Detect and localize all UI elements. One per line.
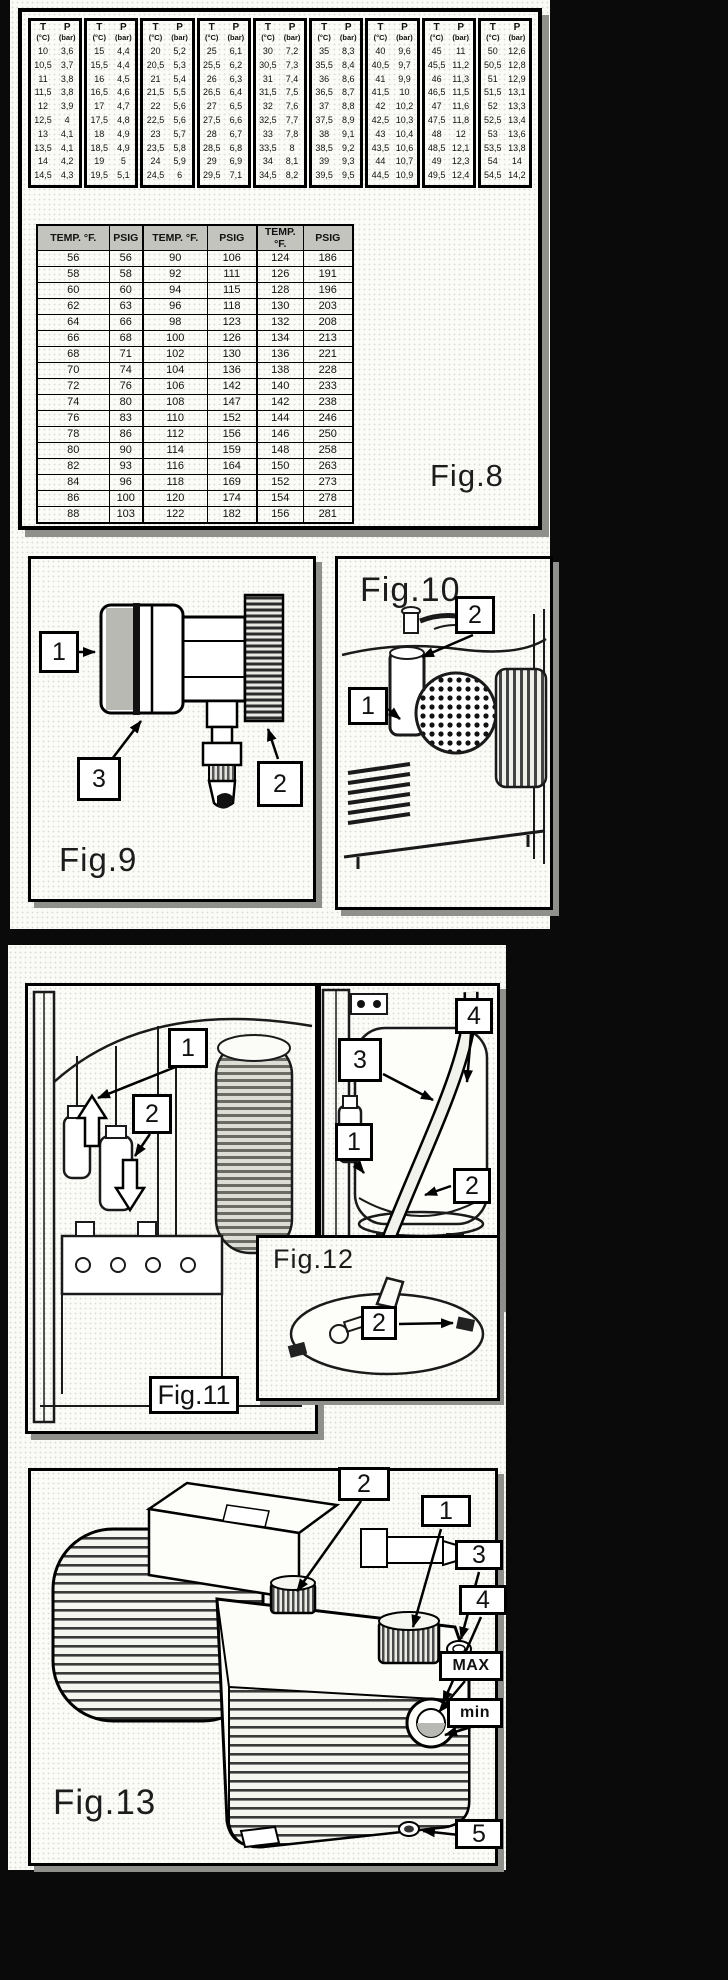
tp-cell-p: 7,5 [280, 86, 304, 100]
psig-cell: 86 [109, 427, 143, 443]
tp-cell-p: 5,6 [168, 100, 192, 114]
psig-header-cell: TEMP. °F. [143, 225, 207, 251]
fig10-callout-2: 2 [455, 596, 495, 634]
psig-cell: 142 [257, 395, 303, 411]
psig-cell: 103 [109, 507, 143, 524]
psig-cell: 74 [109, 363, 143, 379]
tp-cell-t: 41,5 [368, 86, 392, 100]
tp-cell-p: 6 [168, 169, 192, 183]
psig-cell: 66 [109, 315, 143, 331]
tp-cell-t: 10,5 [31, 59, 55, 73]
tp-cell-p: 13,3 [505, 100, 529, 114]
psig-row: 8293116164150263 [37, 459, 353, 475]
tp-cell-p: 8 [280, 142, 304, 156]
tp-cell-p: 3,8 [55, 73, 79, 87]
psig-cell: 120 [143, 491, 207, 507]
tp-pair: T(°C)P(bar)256,125,56,2266,326,56,4276,5… [197, 18, 251, 188]
tp-cell-p: 12 [449, 128, 473, 142]
psig-cell: 221 [303, 347, 353, 363]
tp-cell-p: 4 [55, 114, 79, 128]
tp-cell-p: 11,3 [449, 73, 473, 87]
tp-cell-p: 14 [505, 155, 529, 169]
psig-cell: 233 [303, 379, 353, 395]
psig-cell: 124 [257, 251, 303, 267]
tp-cell-p: 8,2 [280, 169, 304, 183]
fig9-label: Fig.9 [59, 841, 137, 879]
psig-cell: 60 [37, 283, 109, 299]
tp-cell-t: 50 [481, 45, 505, 59]
psig-cell: 278 [303, 491, 353, 507]
tp-cell-t: 45 [425, 45, 449, 59]
tp-pair-header: T(°C)P(bar) [312, 21, 360, 42]
psig-header-cell: TEMP. °F. [257, 225, 303, 251]
tp-cell-p: 10 [392, 86, 416, 100]
tp-cell-t: 25,5 [200, 59, 224, 73]
tp-cell-t: 29 [200, 155, 224, 169]
psig-cell: 110 [143, 411, 207, 427]
tp-cell-p: 4,6 [111, 86, 135, 100]
tp-cell-t: 18,5 [87, 142, 111, 156]
tp-cell-p: 4,3 [55, 169, 79, 183]
tp-cell-t: 17,5 [87, 114, 111, 128]
fig13-callout-3: 3 [455, 1540, 503, 1570]
tp-cell-t: 14 [31, 155, 55, 169]
psig-row: 88103122182156281 [37, 507, 353, 524]
tp-cell-t: 44,5 [368, 169, 392, 183]
psig-cell: 191 [303, 267, 353, 283]
tp-cell-t: 32 [256, 100, 280, 114]
fig12-inset: Fig.12 2 [256, 1235, 500, 1401]
psig-cell: 82 [37, 459, 109, 475]
tp-cell-t: 12,5 [31, 114, 55, 128]
psig-cell: 96 [109, 475, 143, 491]
fig10-panel: Fig.10 2 1 [335, 556, 553, 910]
fig12-callout-4: 4 [455, 998, 493, 1034]
tp-cell-p: 12,9 [505, 73, 529, 87]
tp-cell-p: 9,9 [392, 73, 416, 87]
tp-cell-t: 22,5 [143, 114, 167, 128]
tp-cell-p: 4,2 [55, 155, 79, 169]
fig12-inset-callout-2: 2 [361, 1306, 397, 1340]
tp-cell-p: 7,8 [280, 128, 304, 142]
psig-cell: 130 [207, 347, 257, 363]
psig-cell: 76 [37, 411, 109, 427]
tp-cell-p: 5,7 [168, 128, 192, 142]
psig-cell: 238 [303, 395, 353, 411]
tp-pair-body: 409,640,59,7419,941,5104210,242,510,3431… [368, 42, 416, 185]
tp-pair: T(°C)P(bar)154,415,54,4164,516,54,6174,7… [84, 18, 138, 188]
tp-cell-t: 46 [425, 73, 449, 87]
tp-cell-t: 36 [312, 73, 336, 87]
fig13-panel: 2 1 3 4 MAX min 5 Fig.13 [28, 1468, 498, 1866]
psig-cell: 72 [37, 379, 109, 395]
tp-cell-t: 19,5 [87, 169, 111, 183]
tp-cell-t: 21 [143, 73, 167, 87]
psig-cell: 93 [109, 459, 143, 475]
psig-row: 565690106124186 [37, 251, 353, 267]
tp-cell-p: 12,1 [449, 142, 473, 156]
fig13-label: Fig.13 [53, 1783, 156, 1823]
psig-cell: 130 [257, 299, 303, 315]
psig-cell: 156 [257, 507, 303, 524]
psig-cell: 258 [303, 443, 353, 459]
tp-cell-t: 12 [31, 100, 55, 114]
psig-cell: 154 [257, 491, 303, 507]
fig10-callout-1: 1 [348, 687, 388, 725]
tp-cell-t: 40 [368, 45, 392, 59]
psig-cell: 128 [257, 283, 303, 299]
fig8-tables-box: T(°C)P(bar)103,610,53,7113,811,53,8123,9… [18, 8, 542, 530]
tp-cell-t: 15,5 [87, 59, 111, 73]
tp-cell-p: 5,8 [168, 142, 192, 156]
psig-cell: 213 [303, 331, 353, 347]
tp-cell-t: 30 [256, 45, 280, 59]
tp-cell-p: 4,1 [55, 142, 79, 156]
psig-row: 646698123132208 [37, 315, 353, 331]
tp-cell-t: 51,5 [481, 86, 505, 100]
tp-cell-p: 3,8 [55, 86, 79, 100]
tp-cell-p: 13,8 [505, 142, 529, 156]
psig-cell: 203 [303, 299, 353, 315]
tp-cell-p: 4,4 [111, 45, 135, 59]
tp-cell-t: 32,5 [256, 114, 280, 128]
psig-header-row: TEMP. °F.PSIGTEMP. °F.PSIGTEMP. °F.PSIG [37, 225, 353, 251]
tp-pair-header: T(°C)P(bar) [481, 21, 529, 42]
tp-cell-t: 16,5 [87, 86, 111, 100]
tp-cell-p: 10,3 [392, 114, 416, 128]
fig11-callout-1: 1 [168, 1028, 208, 1068]
tp-pair-body: 256,125,56,2266,326,56,4276,527,56,6286,… [200, 42, 248, 185]
tp-cell-t: 54 [481, 155, 505, 169]
fig8-label: Fig.8 [430, 458, 504, 494]
tp-cell-t: 21,5 [143, 86, 167, 100]
tp-cell-t: 48,5 [425, 142, 449, 156]
tp-pair-body: 103,610,53,7113,811,53,8123,912,54134,11… [31, 42, 79, 185]
psig-cell: 66 [37, 331, 109, 347]
psig-row: 7074104136138228 [37, 363, 353, 379]
fig10-label: Fig.10 [360, 571, 461, 610]
tp-pair-body: 5012,650,512,85112,951,513,15213,352,513… [481, 42, 529, 185]
psig-cell: 150 [257, 459, 303, 475]
page-2: 1 2 Fig.11 [8, 945, 506, 1870]
service-valve [203, 701, 241, 809]
psig-cell: 152 [257, 475, 303, 491]
psig-cell: 106 [143, 379, 207, 395]
psig-row: 86100120174154278 [37, 491, 353, 507]
tp-pair: T(°C)P(bar)103,610,53,7113,811,53,8123,9… [28, 18, 82, 188]
psig-cell: 88 [37, 507, 109, 524]
tp-cell-t: 43,5 [368, 142, 392, 156]
psig-cell: 64 [37, 315, 109, 331]
psig-cell: 156 [207, 427, 257, 443]
tp-cell-t: 15 [87, 45, 111, 59]
psig-cell: 100 [109, 491, 143, 507]
fig13-callout-min: min [447, 1698, 503, 1728]
tp-cell-t: 24,5 [143, 169, 167, 183]
psig-cell: 114 [143, 443, 207, 459]
psig-cell: 80 [37, 443, 109, 459]
tp-cell-p: 13,4 [505, 114, 529, 128]
tp-cell-p: 7,1 [224, 169, 248, 183]
tp-cell-p: 9,2 [336, 142, 360, 156]
tp-pair: T(°C)P(bar)451145,511,24611,346,511,5471… [422, 18, 476, 188]
psig-cell: 132 [257, 315, 303, 331]
psig-cell: 111 [207, 267, 257, 283]
tp-cell-p: 8,7 [336, 86, 360, 100]
fig13-callout-5: 5 [455, 1819, 503, 1849]
psig-header-cell: PSIG [207, 225, 257, 251]
psig-cell: 112 [143, 427, 207, 443]
fig13-callout-4: 4 [459, 1585, 507, 1615]
tp-cell-p: 7,6 [280, 100, 304, 114]
tp-cell-p: 8,4 [336, 59, 360, 73]
tp-cell-p: 5 [111, 155, 135, 169]
psig-cell: 92 [143, 267, 207, 283]
tp-cell-p: 14,2 [505, 169, 529, 183]
tp-cell-t: 24 [143, 155, 167, 169]
tp-cell-t: 52,5 [481, 114, 505, 128]
psig-row: 6668100126134213 [37, 331, 353, 347]
psig-cell: 152 [207, 411, 257, 427]
fig12-label: Fig.12 [273, 1244, 354, 1275]
psig-cell: 174 [207, 491, 257, 507]
tp-cell-t: 31,5 [256, 86, 280, 100]
tp-cell-t: 50,5 [481, 59, 505, 73]
tp-cell-t: 53 [481, 128, 505, 142]
tp-pair: T(°C)P(bar)205,220,55,3215,421,55,5225,6… [140, 18, 194, 188]
tp-cell-p: 5,3 [168, 59, 192, 73]
tp-cell-t: 40,5 [368, 59, 392, 73]
tp-cell-p: 9,3 [336, 155, 360, 169]
psig-cell: 273 [303, 475, 353, 491]
tp-cell-p: 7,7 [280, 114, 304, 128]
psig-cell: 68 [37, 347, 109, 363]
tp-pair-body: 205,220,55,3215,421,55,5225,622,55,6235,… [143, 42, 191, 185]
tp-cell-t: 29,5 [200, 169, 224, 183]
psig-row: 8090114159148258 [37, 443, 353, 459]
fig9-callout-3: 3 [77, 757, 121, 801]
psig-cell: 126 [207, 331, 257, 347]
psig-cell: 136 [207, 363, 257, 379]
fig10-drawing [338, 559, 550, 907]
tp-cell-p: 11 [449, 45, 473, 59]
tp-cell-p: 4,5 [111, 73, 135, 87]
psig-cell: 70 [37, 363, 109, 379]
tp-cell-t: 13,5 [31, 142, 55, 156]
tp-cell-p: 3,7 [55, 59, 79, 73]
tp-cell-p: 6,4 [224, 86, 248, 100]
arrow-to-tab [399, 1323, 453, 1324]
tp-cell-t: 10 [31, 45, 55, 59]
psig-cell: 140 [257, 379, 303, 395]
tp-cell-t: 49,5 [425, 169, 449, 183]
tp-cell-p: 5,4 [168, 73, 192, 87]
tp-cell-t: 28,5 [200, 142, 224, 156]
tp-cell-t: 35,5 [312, 59, 336, 73]
tp-cell-p: 4,9 [111, 128, 135, 142]
tp-cell-p: 6,1 [224, 45, 248, 59]
psig-header-cell: TEMP. °F. [37, 225, 109, 251]
fig13-callout-1: 1 [421, 1495, 471, 1527]
psig-cell: 76 [109, 379, 143, 395]
tp-cell-p: 6,6 [224, 114, 248, 128]
psig-header-cell: PSIG [109, 225, 143, 251]
psig-cell: 74 [37, 395, 109, 411]
tp-cell-t: 26 [200, 73, 224, 87]
fig12-callout-2: 2 [453, 1168, 491, 1204]
tp-pair-header: T(°C)P(bar) [256, 21, 304, 42]
fig12-callout-3: 3 [338, 1038, 382, 1082]
tp-pair: T(°C)P(bar)358,335,58,4368,636,58,7378,8… [309, 18, 363, 188]
psig-cell: 122 [143, 507, 207, 524]
tp-cell-t: 27,5 [200, 114, 224, 128]
psig-cell: 71 [109, 347, 143, 363]
psig-cell: 148 [257, 443, 303, 459]
tp-pair-header: T(°C)P(bar) [425, 21, 473, 42]
psig-cell: 80 [109, 395, 143, 411]
tp-cell-p: 6,2 [224, 59, 248, 73]
tp-cell-p: 8,8 [336, 100, 360, 114]
tp-cell-t: 30,5 [256, 59, 280, 73]
tp-cell-p: 5,2 [168, 45, 192, 59]
tp-cell-p: 11,5 [449, 86, 473, 100]
fig11-callout-2: 2 [132, 1094, 172, 1134]
psig-cell: 100 [143, 331, 207, 347]
psig-cell: 68 [109, 331, 143, 347]
tp-pair: T(°C)P(bar)5012,650,512,85112,951,513,15… [478, 18, 532, 188]
psig-row: 7480108147142238 [37, 395, 353, 411]
tp-cell-t: 38,5 [312, 142, 336, 156]
tp-cell-t: 43 [368, 128, 392, 142]
fig13-callout-max: MAX [439, 1651, 503, 1681]
tp-cell-t: 27 [200, 100, 224, 114]
tp-cell-t: 14,5 [31, 169, 55, 183]
tp-cell-p: 6,8 [224, 142, 248, 156]
psig-row: 606094115128196 [37, 283, 353, 299]
psig-cell: 263 [303, 459, 353, 475]
psig-cell: 144 [257, 411, 303, 427]
psig-cell: 169 [207, 475, 257, 491]
tp-cell-p: 4,1 [55, 128, 79, 142]
psig-row: 585892111126191 [37, 267, 353, 283]
psig-cell: 138 [257, 363, 303, 379]
psig-cell: 118 [207, 299, 257, 315]
psig-cell: 246 [303, 411, 353, 427]
tp-cell-p: 10,7 [392, 155, 416, 169]
tp-cell-p: 4,8 [111, 114, 135, 128]
psig-cell: 186 [303, 251, 353, 267]
tp-cell-p: 10,4 [392, 128, 416, 142]
tp-cell-p: 11,6 [449, 100, 473, 114]
tp-cell-p: 7,4 [280, 73, 304, 87]
tp-cell-t: 39,5 [312, 169, 336, 183]
tp-pair: T(°C)P(bar)409,640,59,7419,941,5104210,2… [365, 18, 419, 188]
tp-cell-t: 51 [481, 73, 505, 87]
psig-cell: 136 [257, 347, 303, 363]
tp-cell-t: 33 [256, 128, 280, 142]
filter-drier-body [101, 603, 183, 715]
psig-cell: 63 [109, 299, 143, 315]
tp-cell-p: 7,3 [280, 59, 304, 73]
tp-pair-header: T(°C)P(bar) [368, 21, 416, 42]
psig-cell: 83 [109, 411, 143, 427]
tp-cell-p: 10,2 [392, 100, 416, 114]
tp-pair-body: 307,230,57,3317,431,57,5327,632,57,7337,… [256, 42, 304, 185]
tp-cell-t: 22 [143, 100, 167, 114]
psig-cell: 96 [143, 299, 207, 315]
arrow-from-5 [423, 1831, 459, 1835]
tp-cell-t: 42 [368, 100, 392, 114]
arrow-from-2 [135, 1134, 150, 1156]
psig-cell: 126 [257, 267, 303, 283]
tp-cell-t: 52 [481, 100, 505, 114]
tp-cell-t: 54,5 [481, 169, 505, 183]
tp-cell-t: 37,5 [312, 114, 336, 128]
tp-cell-t: 45,5 [425, 59, 449, 73]
tp-cell-p: 4,9 [111, 142, 135, 156]
tp-cell-t: 34 [256, 155, 280, 169]
tp-pair-body: 154,415,54,4164,516,54,6174,717,54,8184,… [87, 42, 135, 185]
tp-cell-p: 13,6 [505, 128, 529, 142]
psig-cell: 90 [143, 251, 207, 267]
tp-cell-p: 9,6 [392, 45, 416, 59]
psig-cell: 60 [109, 283, 143, 299]
psig-cell: 118 [143, 475, 207, 491]
tp-cell-p: 5,9 [168, 155, 192, 169]
psig-cell: 196 [303, 283, 353, 299]
tp-cell-p: 9,5 [336, 169, 360, 183]
tp-cell-t: 42,5 [368, 114, 392, 128]
psig-row: 7276106142140233 [37, 379, 353, 395]
psig-cell: 147 [207, 395, 257, 411]
psig-cell: 159 [207, 443, 257, 459]
tp-table: T(°C)P(bar)103,610,53,7113,811,53,8123,9… [27, 18, 533, 188]
tp-pair: T(°C)P(bar)307,230,57,3317,431,57,5327,6… [253, 18, 307, 188]
ribbed-nut [245, 595, 283, 721]
tp-cell-t: 35 [312, 45, 336, 59]
tp-cell-t: 26,5 [200, 86, 224, 100]
tp-cell-t: 17 [87, 100, 111, 114]
tp-cell-p: 4,7 [111, 100, 135, 114]
tp-cell-t: 11,5 [31, 86, 55, 100]
tp-cell-p: 9,1 [336, 128, 360, 142]
tp-cell-p: 11,8 [449, 114, 473, 128]
tp-cell-p: 10,9 [392, 169, 416, 183]
tp-cell-t: 48 [425, 128, 449, 142]
tp-cell-t: 11 [31, 73, 55, 87]
psig-cell: 250 [303, 427, 353, 443]
tp-cell-p: 5,5 [168, 86, 192, 100]
fig13-callout-2: 2 [338, 1467, 390, 1501]
tp-pair-header: T(°C)P(bar) [31, 21, 79, 42]
psig-row: 7683110152144246 [37, 411, 353, 427]
psig-cell: 90 [109, 443, 143, 459]
tp-cell-p: 3,6 [55, 45, 79, 59]
psig-cell: 62 [37, 299, 109, 315]
tp-pair-header: T(°C)P(bar) [87, 21, 135, 42]
psig-cell: 104 [143, 363, 207, 379]
psig-table: TEMP. °F.PSIGTEMP. °F.PSIGTEMP. °F.PSIG5… [36, 224, 354, 524]
tp-cell-t: 31 [256, 73, 280, 87]
tp-cell-p: 8,6 [336, 73, 360, 87]
tp-cell-t: 38 [312, 128, 336, 142]
psig-table-body: TEMP. °F.PSIGTEMP. °F.PSIGTEMP. °F.PSIG5… [37, 225, 353, 523]
psig-row: 6871102130136221 [37, 347, 353, 363]
tp-cell-p: 6,3 [224, 73, 248, 87]
psig-cell: 106 [207, 251, 257, 267]
fig9-callout-1: 1 [39, 631, 79, 673]
connector-block [183, 617, 245, 701]
